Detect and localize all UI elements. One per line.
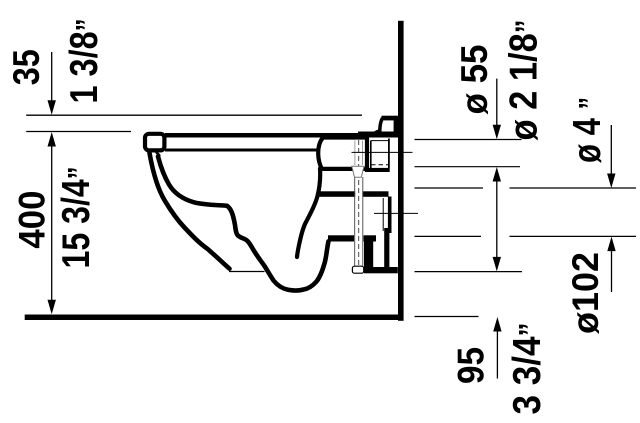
svg-text:ø102: ø102 bbox=[565, 252, 606, 334]
svg-text:400: 400 bbox=[12, 191, 53, 249]
svg-text:ø 2 1/8”: ø 2 1/8” bbox=[503, 20, 546, 141]
svg-text:3 3/4”: 3 3/4” bbox=[506, 323, 549, 415]
svg-text:ø 55: ø 55 bbox=[454, 45, 495, 115]
svg-text:1 3/8”: 1 3/8” bbox=[63, 19, 106, 104]
svg-text:35: 35 bbox=[6, 49, 47, 85]
svg-text:15 3/4”: 15 3/4” bbox=[55, 167, 98, 269]
svg-text:ø 4 ”: ø 4 ” bbox=[566, 97, 609, 163]
svg-text:95: 95 bbox=[451, 347, 492, 384]
